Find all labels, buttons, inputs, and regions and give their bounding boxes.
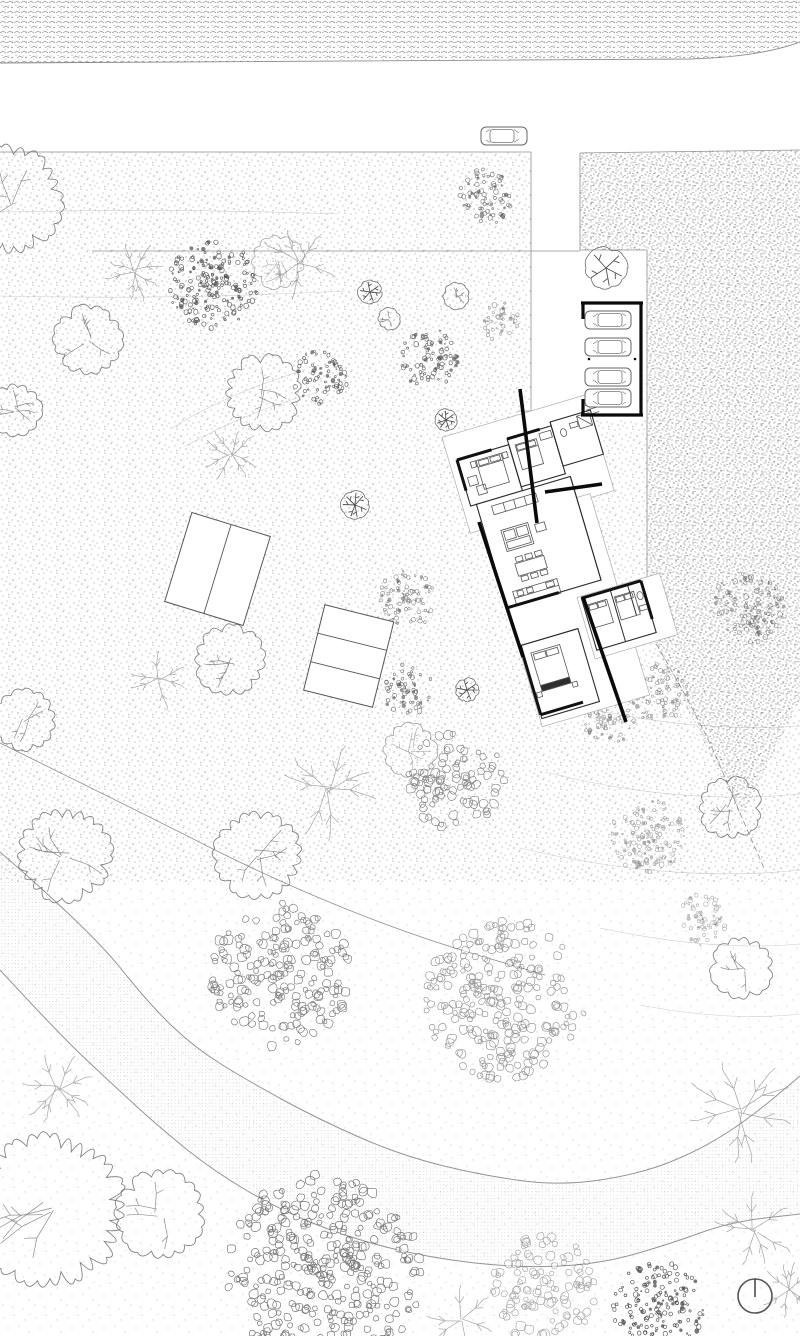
driveway (531, 152, 580, 414)
site-plan-page (0, 0, 800, 1336)
meadow-stipple-sparse (0, 882, 800, 1336)
parked-car (585, 368, 631, 386)
carport-post (634, 358, 637, 361)
road-car (481, 127, 527, 145)
ground-texture-layer (0, 0, 800, 1336)
carport-post (588, 358, 591, 361)
parked-car (585, 311, 631, 329)
parked-car (585, 389, 631, 407)
parked-car (585, 338, 631, 356)
site-plan-drawing (0, 0, 800, 1336)
roadside-verge-hatch (0, 0, 800, 63)
